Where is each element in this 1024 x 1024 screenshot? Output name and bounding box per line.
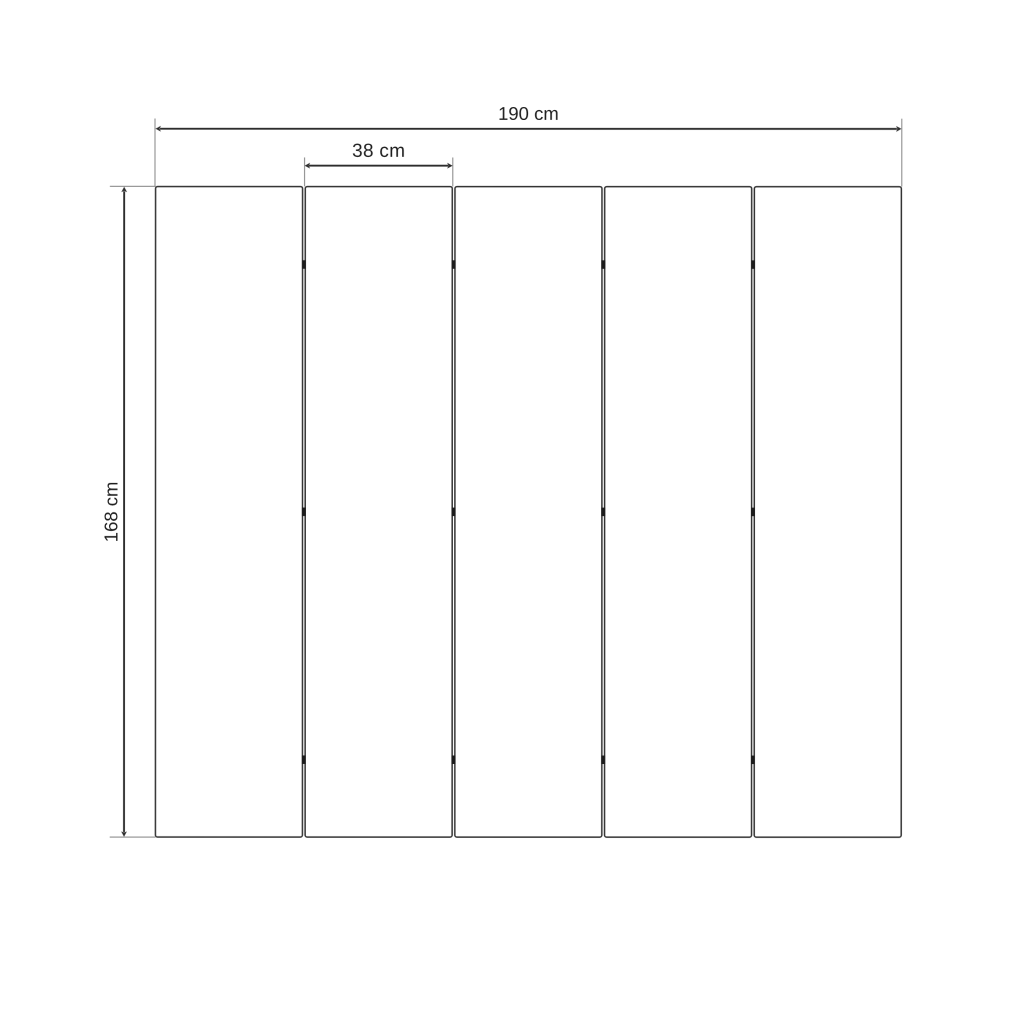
svg-text:168 cm: 168 cm [101,482,122,543]
svg-text:38 cm: 38 cm [352,141,405,162]
svg-text:190 cm: 190 cm [498,103,559,124]
